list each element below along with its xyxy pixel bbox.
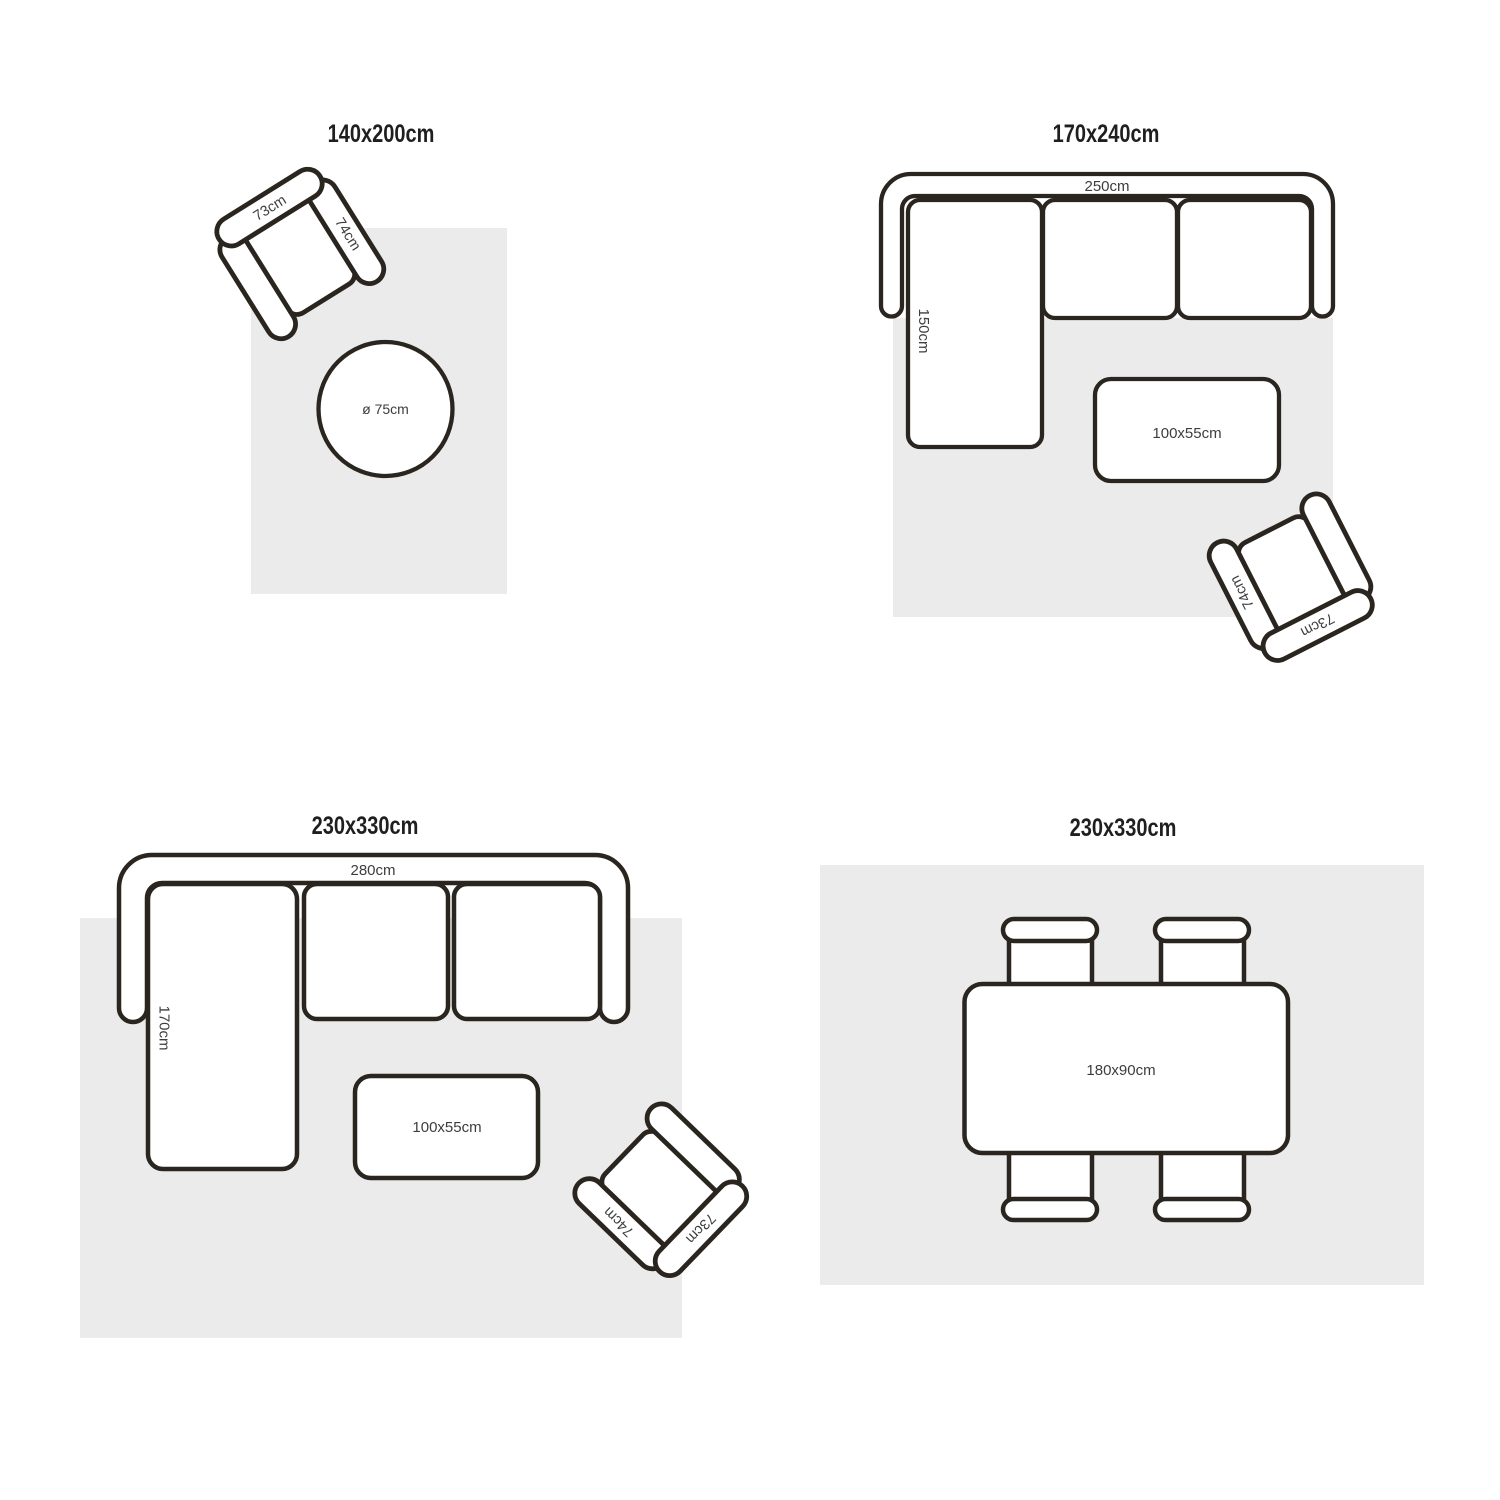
svg-text:170cm: 170cm <box>156 1005 173 1050</box>
svg-text:100x55cm: 100x55cm <box>1152 425 1221 442</box>
svg-text:280cm: 280cm <box>350 862 395 879</box>
svg-text:100x55cm: 100x55cm <box>412 1119 481 1136</box>
svg-text:150cm: 150cm <box>915 308 932 353</box>
svg-text:250cm: 250cm <box>1084 178 1129 195</box>
svg-text:ø 75cm: ø 75cm <box>362 401 409 417</box>
svg-text:230x330cm: 230x330cm <box>1070 814 1177 842</box>
svg-text:230x330cm: 230x330cm <box>312 812 419 840</box>
svg-text:170x240cm: 170x240cm <box>1053 120 1160 148</box>
svg-text:140x200cm: 140x200cm <box>328 120 435 148</box>
svg-text:180x90cm: 180x90cm <box>1086 1062 1155 1079</box>
